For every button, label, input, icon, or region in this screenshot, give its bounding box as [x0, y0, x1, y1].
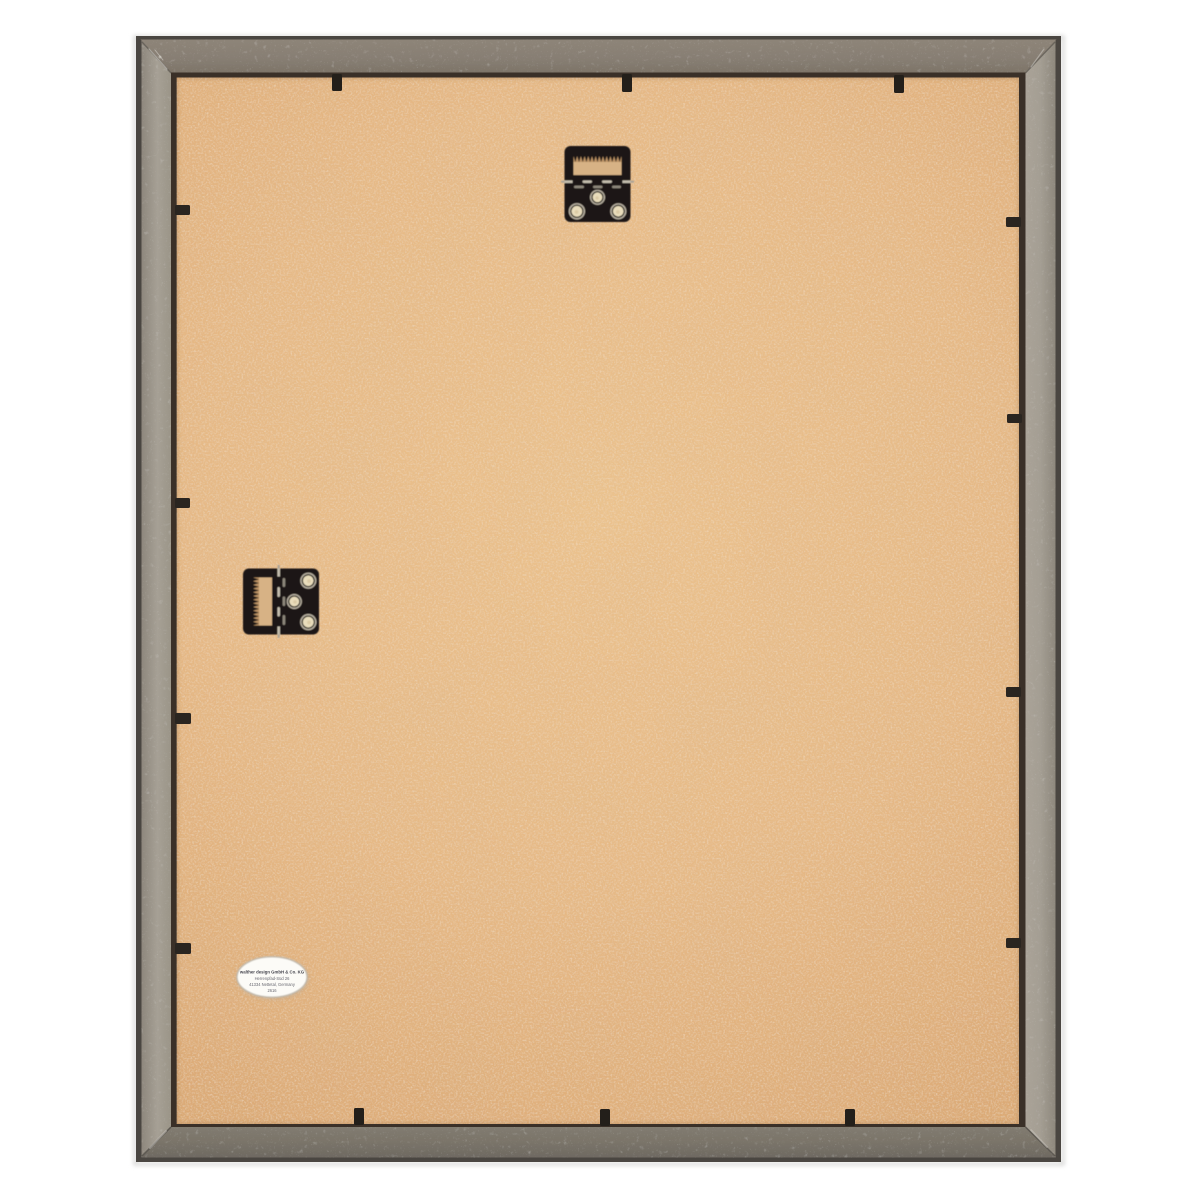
svg-text:Herrenpfad-Süd 26: Herrenpfad-Süd 26 [255, 976, 291, 981]
svg-text:walther design GmbH & Co. KG: walther design GmbH & Co. KG [239, 970, 305, 975]
svg-text:41334 Nettetal, Germany: 41334 Nettetal, Germany [249, 982, 296, 987]
svg-text:2616: 2616 [267, 988, 277, 993]
